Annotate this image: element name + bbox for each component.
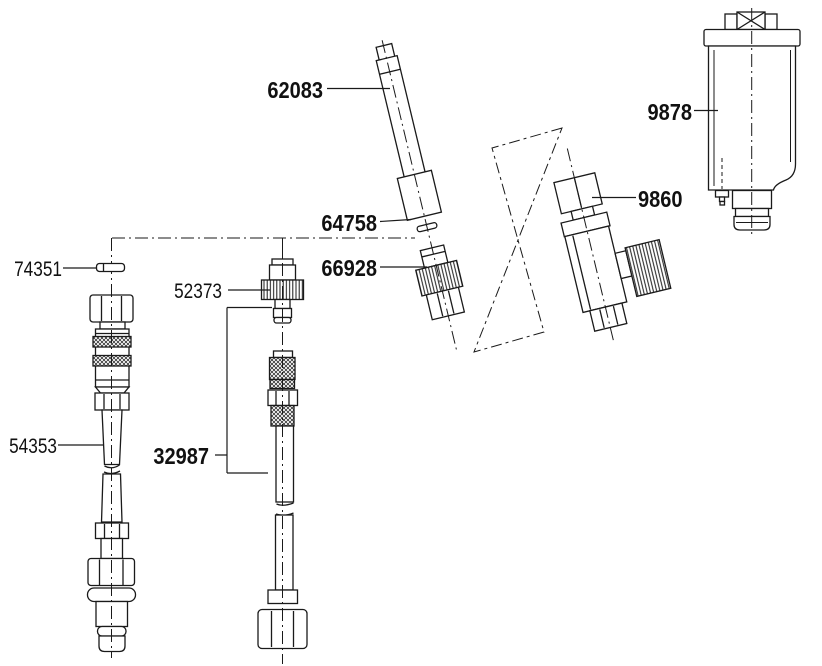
tube-sleeve [397,170,441,220]
part-32987 [258,240,307,664]
part-label-9878: 9878 [622,101,692,124]
part-label-64758: 64758 [307,212,377,235]
part-label-9860: 9860 [638,188,683,211]
part-54353 [88,238,136,658]
part-label-74351: 74351 [0,259,62,280]
parts-diagram: 62083 64758 66928 74351 52373 54353 3298… [0,0,822,666]
part-label-32987: 32987 [139,445,209,468]
slanted-chain [362,35,478,356]
part-label-62083: 62083 [253,79,323,102]
part-9860 [544,133,679,346]
pin [97,264,125,272]
cap-tab [765,14,777,30]
cap-tab [725,14,737,30]
bracket-32987 [215,308,272,474]
ref-outline-box [474,128,562,352]
leader-64758 [380,220,411,222]
part-label-54353: 54353 [0,436,57,457]
construction-lines [112,128,562,352]
part-label-52373: 52373 [156,281,222,302]
knurled-knob [625,240,671,297]
tube-lower [276,515,294,590]
part-74351 [97,264,125,272]
part-9878 [704,8,800,236]
diagram-artwork [0,0,822,666]
tube-upper [276,426,294,502]
drain-valve [716,191,729,198]
part-label-66928: 66928 [307,257,377,280]
